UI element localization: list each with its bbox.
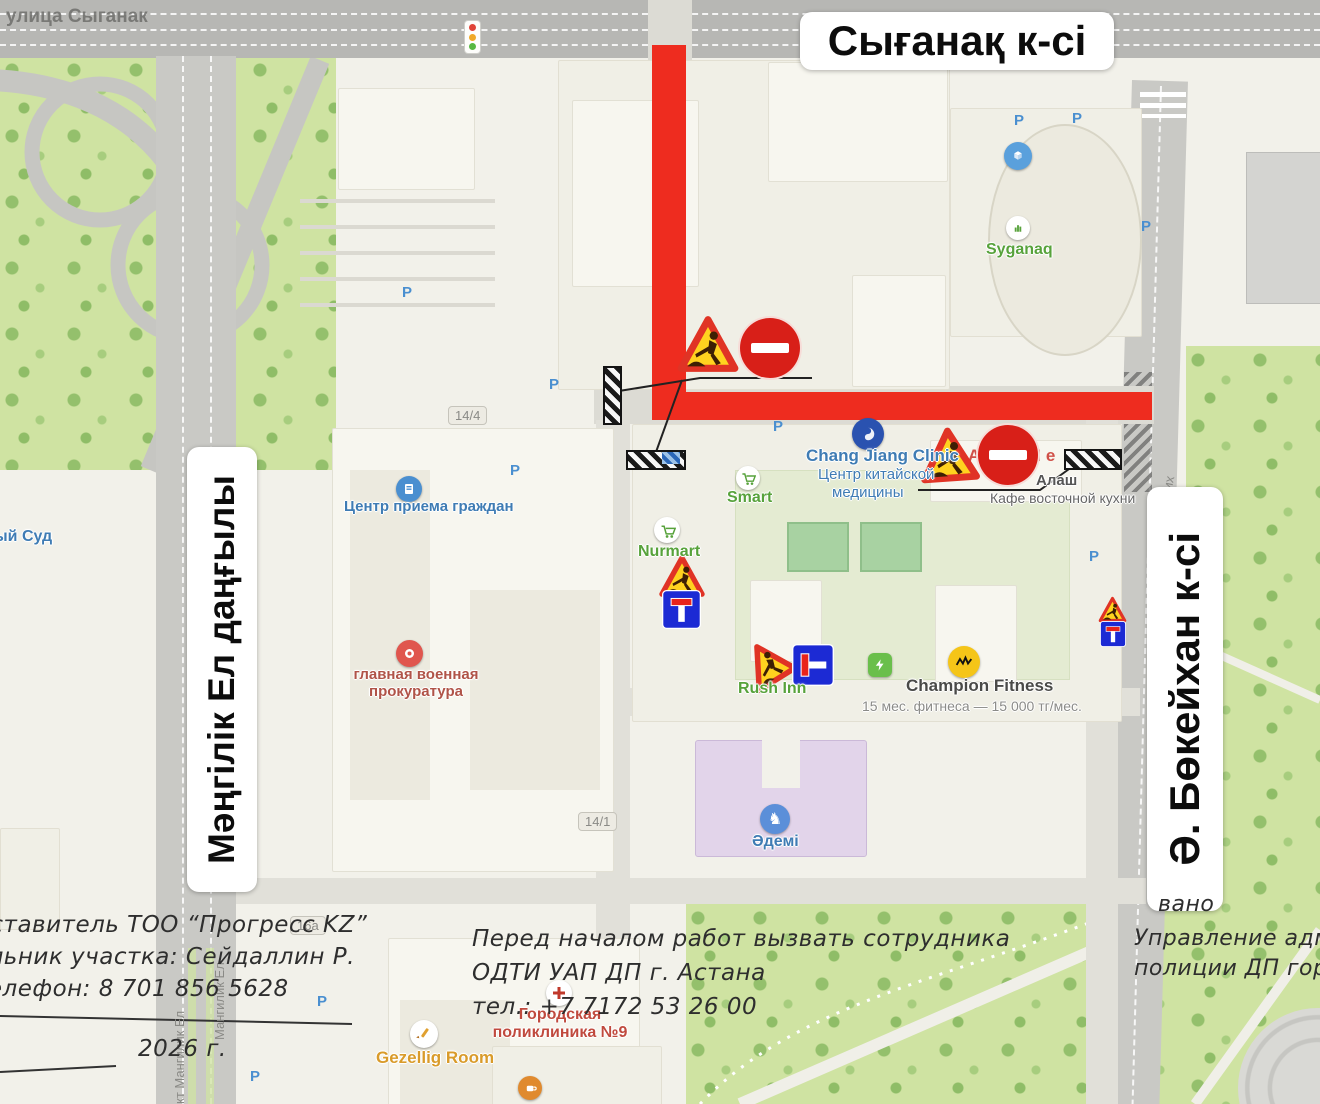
parking-icon[interactable]: P [773,418,783,435]
poi-label-smart[interactable]: Smart [727,489,772,507]
no-entry-bar [989,450,1027,461]
street-card-syganak-text: Сығанақ к-сі [828,17,1087,65]
street-card-bokeikhan-text: Ә. Бөкейхан к-сі [1161,532,1209,866]
no-entry-bar [751,343,789,354]
parking-icon[interactable]: P [317,993,327,1010]
street-card-mangilik-el: Мәңгілік Ел даңғылы [187,447,257,892]
smart-store-icon[interactable] [736,466,760,490]
poi-label-ademi[interactable]: Әдемі [752,833,799,851]
roadwork-sign [676,314,740,374]
prosecutor-line2: прокуратура [369,683,463,700]
construction-scheme-map: Алтын И е Центр приема граждан главная в… [0,0,1320,1104]
year-note: 2026 г. [138,1036,227,1062]
dead-end-sign [1100,621,1126,647]
call-note-line2: ОДТИ УАП ДП г. Астана [472,960,766,986]
parking-icon[interactable]: P [549,376,559,393]
barrier-icon [603,366,622,425]
traffic-light-yellow [469,34,476,41]
contractor-note-line3: телефон: 8 701 856 5628 [0,976,289,1002]
barrier-icon [1064,449,1122,470]
poi-label-gezellig[interactable]: Gezellig Room [376,1048,494,1068]
champion-fitness-icon[interactable] [948,646,980,678]
no-entry-sign [978,425,1038,485]
coffee-icon[interactable] [518,1076,542,1100]
poi-label-reception[interactable]: Центр приема граждан [344,498,514,515]
parking-icon[interactable]: P [1014,112,1024,129]
barrier-blue-section [662,452,680,464]
parking-icon[interactable]: P [1141,218,1151,235]
parking-icon[interactable]: P [510,462,520,479]
approval-note-line2: Управление админи [1134,926,1320,951]
street-card-syganak: Сығанақ к-сі [800,12,1114,70]
parking-icon[interactable]: P [250,1068,260,1085]
call-note-line1: Перед началом работ вызвать сотрудника [472,926,1010,952]
traffic-light-icon [464,20,481,54]
poi-label-champion[interactable]: Champion Fitness [906,676,1053,696]
approval-note-line3: полиции ДП города [1134,956,1320,981]
parking-icon[interactable]: P [1072,110,1082,127]
parking-icon[interactable]: P [402,284,412,301]
poi-label-clinic-sub2: медицины [832,484,904,501]
traffic-light-green [469,43,476,50]
parking-icon[interactable]: P [1089,548,1099,565]
no-entry-sign [740,318,800,378]
poi-label-alash-sub: Кафе восточной кухни [990,490,1135,506]
prosecutor-line1: главная военная [353,666,478,683]
street-label-syganak-small: улица Сыганак [6,6,148,28]
ev-charging-icon[interactable] [868,653,892,677]
street-card-bokeikhan: Ә. Бөкейхан к-сі [1147,487,1223,911]
ademi-horse-glyph: ♞ [768,809,782,829]
syganaq-building-icon[interactable] [1006,216,1030,240]
poi-label-champion-sub: 15 мес. фитнеса — 15 000 тг/мес. [862,698,1082,714]
poi-label-prosecutor[interactable]: главная военная прокуратура [336,666,496,700]
contractor-note-line1: дставитель ТОО “Прогресс KZ” [0,912,367,938]
prosecutor-icon[interactable] [396,640,423,667]
contractor-note-line2: альник участка: Сейдаллин Р. [0,944,355,970]
polyclinic-line2: поликлиника №9 [493,1024,628,1041]
dead-end-sign [662,590,701,629]
poi-label-syganaq[interactable]: Syganaq [986,241,1053,259]
nurmart-store-icon[interactable] [654,517,680,543]
poi-label-clinic[interactable]: Chang Jiang Clinic [806,446,959,466]
roadwork-sign [1098,596,1127,623]
parcel-locker-icon[interactable] [1004,142,1032,170]
street-card-mangilik-el-text: Мәңгілік Ел даңғылы [201,475,243,864]
house-number-badge: 14/1 [578,812,617,831]
court-label[interactable]: ый Суд [0,528,52,546]
approval-note-line1: вано [1158,892,1214,917]
call-note-line3: тел.: +7 7172 53 26 00 [472,994,757,1020]
poi-label-clinic-sub1: Центр китайской [818,466,934,483]
poi-label-alash[interactable]: Алаш [1036,472,1077,489]
traffic-light-red [469,24,476,31]
poi-label-rush-inn[interactable]: Rush Inn [738,680,806,698]
gezellig-room-icon[interactable] [410,1020,438,1048]
ademi-kindergarten-icon[interactable]: ♞ [760,804,790,834]
house-number-badge: 14/4 [448,406,487,425]
poi-label-nurmart[interactable]: Nurmart [638,543,700,561]
